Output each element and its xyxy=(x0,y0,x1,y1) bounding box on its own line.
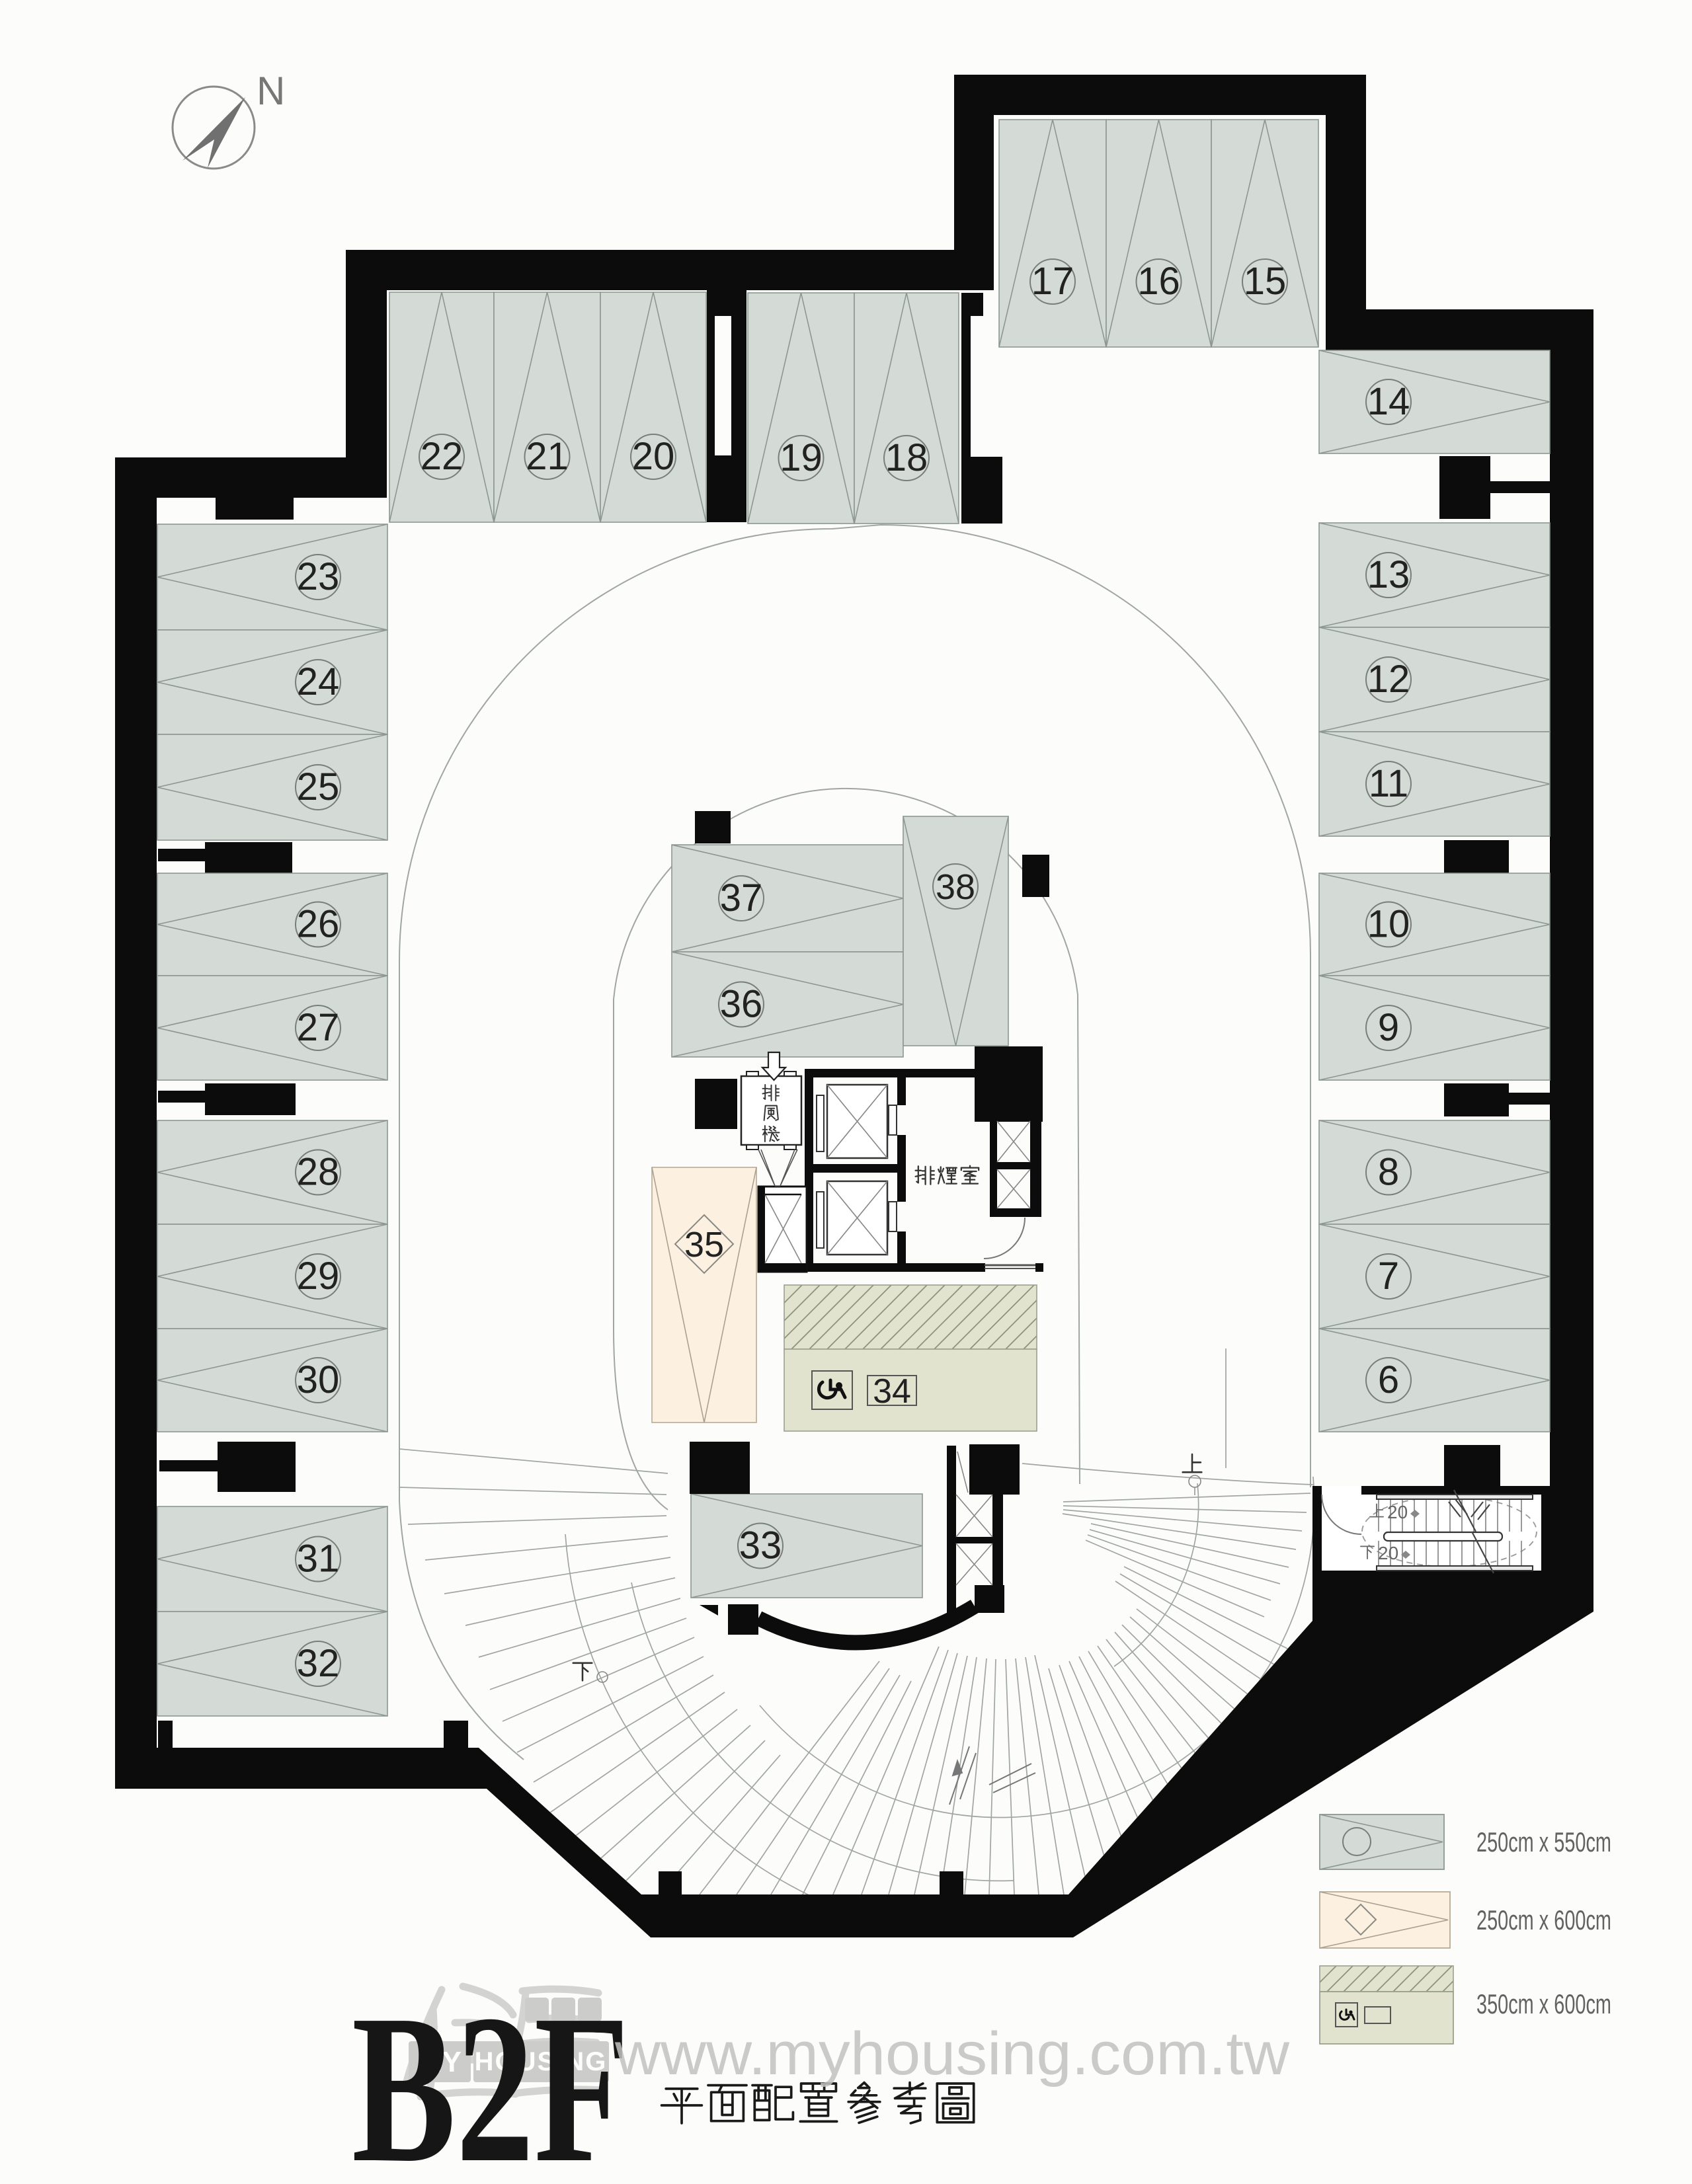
svg-text:25: 25 xyxy=(297,765,340,808)
svg-text:27: 27 xyxy=(297,1006,340,1049)
svg-text:11: 11 xyxy=(1369,762,1408,805)
svg-text:32: 32 xyxy=(297,1642,340,1685)
svg-text:350cm x 600cm: 350cm x 600cm xyxy=(1476,1988,1611,2019)
svg-text:8: 8 xyxy=(1378,1151,1399,1194)
svg-text:34: 34 xyxy=(873,1372,911,1411)
svg-text:N: N xyxy=(257,69,285,113)
svg-text:37: 37 xyxy=(720,877,763,919)
svg-text:17: 17 xyxy=(1031,260,1074,303)
svg-text:15: 15 xyxy=(1244,260,1287,303)
svg-text:31: 31 xyxy=(297,1538,340,1580)
svg-text:7: 7 xyxy=(1378,1255,1399,1298)
svg-text:36: 36 xyxy=(720,983,763,1026)
svg-text:24: 24 xyxy=(297,660,340,703)
svg-text:20: 20 xyxy=(632,435,675,478)
svg-text:18: 18 xyxy=(885,436,928,479)
svg-text:21: 21 xyxy=(526,435,569,478)
svg-text:13: 13 xyxy=(1367,553,1410,596)
svg-text:12: 12 xyxy=(1367,658,1410,701)
svg-text:14: 14 xyxy=(1367,380,1410,423)
svg-text:20: 20 xyxy=(1387,1502,1408,1522)
svg-text:23: 23 xyxy=(297,555,340,598)
svg-text:www.myhousing.com.tw: www.myhousing.com.tw xyxy=(614,2020,1290,2087)
svg-text:250cm x 550cm: 250cm x 550cm xyxy=(1476,1826,1611,1857)
svg-text:6: 6 xyxy=(1378,1358,1399,1401)
svg-text:16: 16 xyxy=(1137,260,1180,303)
svg-text:10: 10 xyxy=(1367,903,1410,946)
svg-text:29: 29 xyxy=(297,1255,340,1298)
svg-text:19: 19 xyxy=(780,436,823,479)
svg-text:9: 9 xyxy=(1378,1006,1399,1049)
svg-text:38: 38 xyxy=(936,867,975,907)
svg-text:33: 33 xyxy=(739,1524,782,1567)
svg-text:26: 26 xyxy=(297,903,340,946)
svg-text:30: 30 xyxy=(297,1358,340,1401)
svg-text:28: 28 xyxy=(297,1151,340,1194)
svg-text:35: 35 xyxy=(684,1225,724,1265)
svg-text:20: 20 xyxy=(1378,1543,1398,1563)
svg-text:250cm x 600cm: 250cm x 600cm xyxy=(1476,1904,1611,1935)
svg-text:B2F: B2F xyxy=(352,1970,629,2184)
svg-text:22: 22 xyxy=(421,435,463,478)
